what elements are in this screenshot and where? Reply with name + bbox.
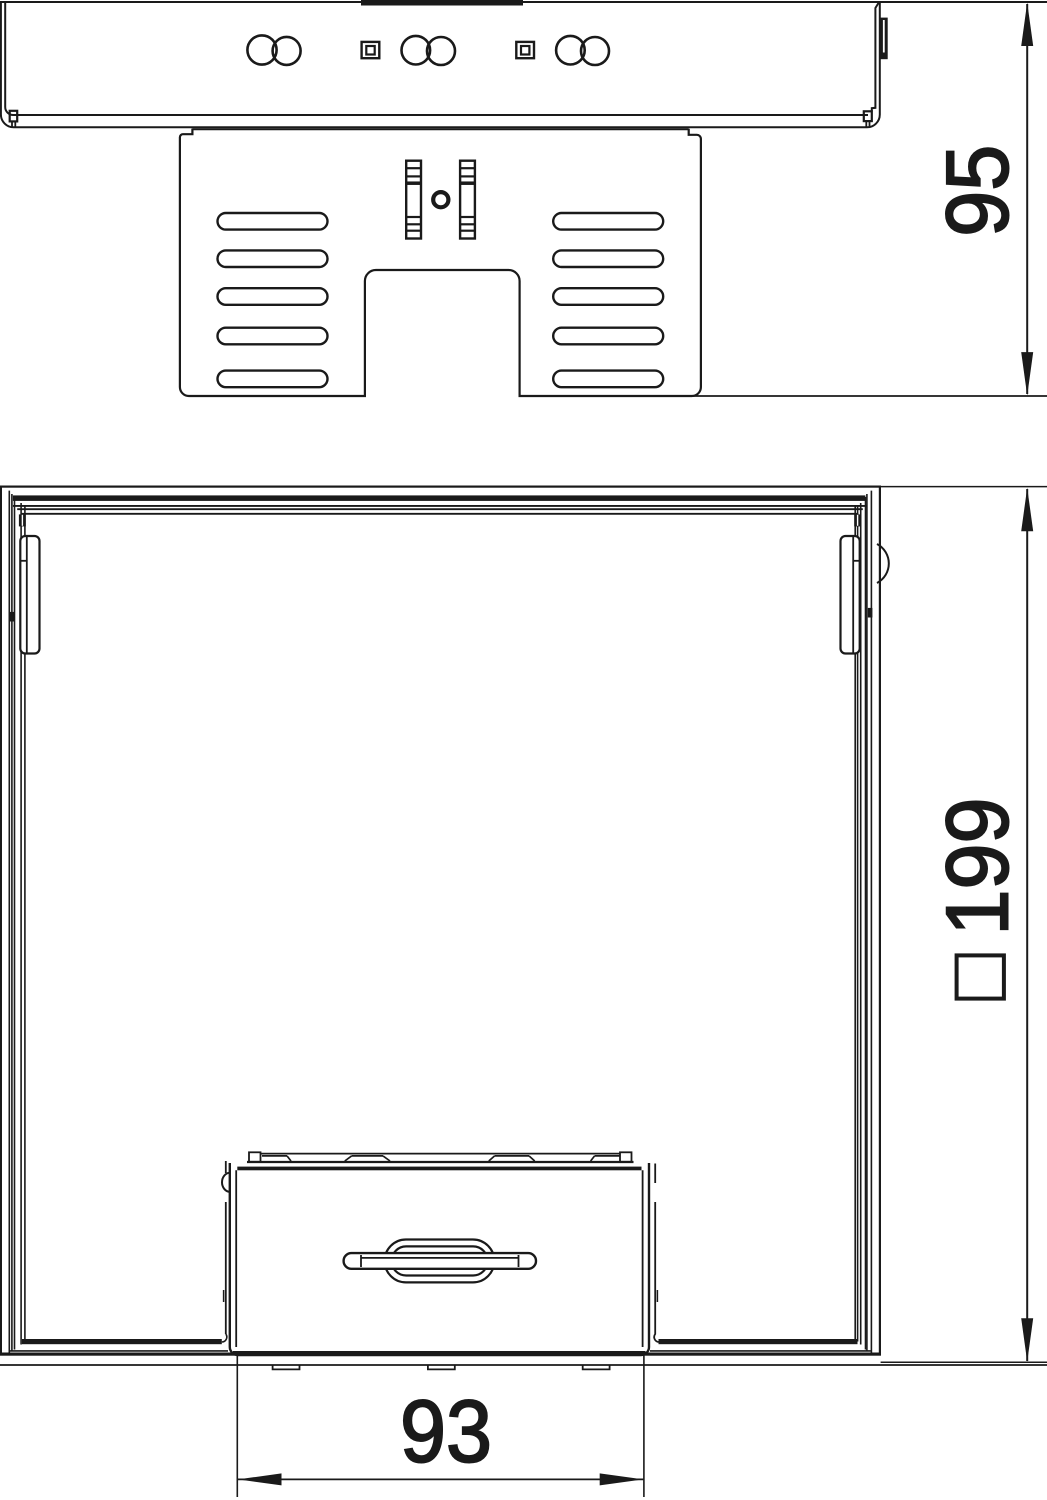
svg-text:199: 199 (928, 798, 1027, 936)
svg-text:95: 95 (928, 145, 1027, 237)
svg-text:93: 93 (400, 1382, 492, 1481)
